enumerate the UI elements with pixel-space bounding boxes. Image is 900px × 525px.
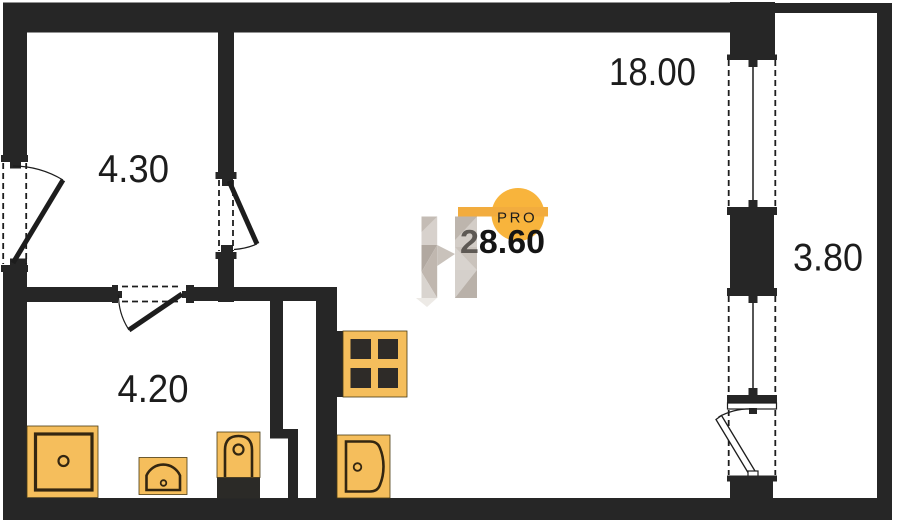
- svg-text:4.20: 4.20: [118, 368, 189, 411]
- svg-text:3.80: 3.80: [793, 237, 863, 280]
- svg-text:18.00: 18.00: [609, 51, 696, 94]
- svg-text:4.30: 4.30: [98, 148, 169, 191]
- svg-text:28.60: 28.60: [460, 223, 545, 260]
